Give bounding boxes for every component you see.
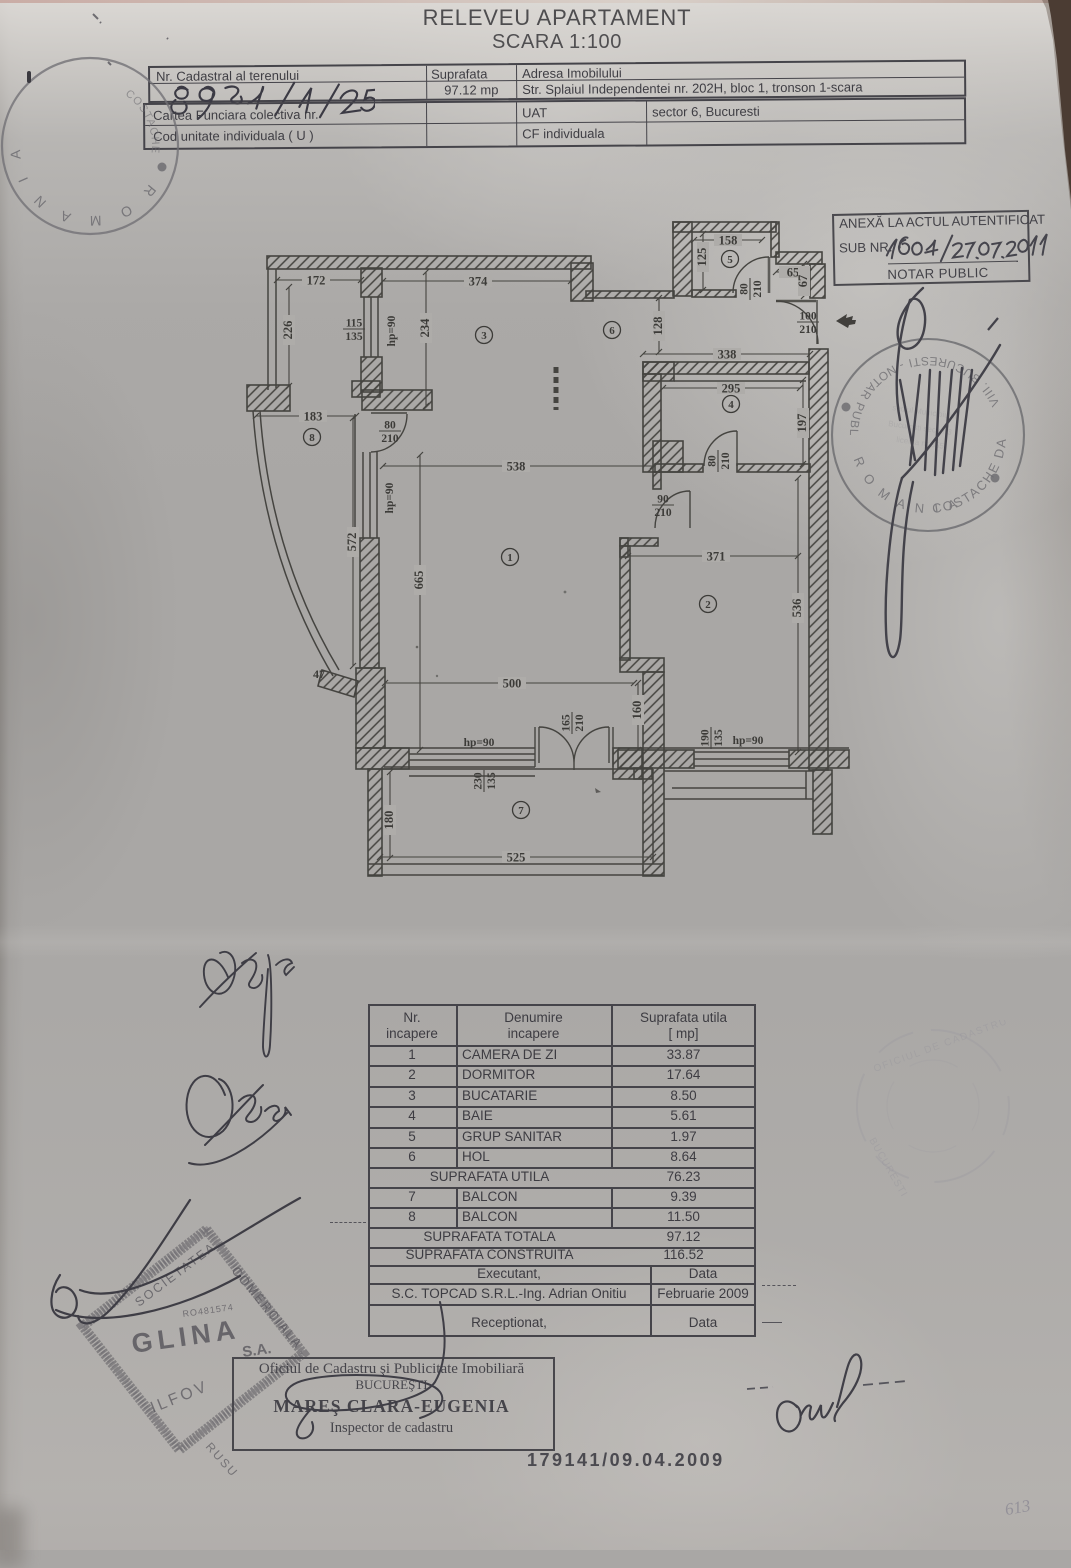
svg-text:160: 160 [630,701,644,720]
svg-text:183: 183 [304,410,323,424]
svg-text:135: 135 [486,772,498,790]
svg-text:165: 165 [561,714,573,732]
svg-text:47: 47 [313,667,325,681]
svg-text:230: 230 [473,772,485,790]
svg-text:90: 90 [657,494,669,506]
svg-text:hp=90: hp=90 [464,737,495,749]
svg-text:1: 1 [507,552,513,564]
svg-text:135: 135 [713,729,725,747]
svg-text:210: 210 [654,507,672,519]
svg-text:4: 4 [728,399,734,411]
svg-text:ILFOV: ILFOV [148,1378,211,1417]
svg-text:80: 80 [384,420,396,432]
svg-text:COSTACHE: COSTACHE [123,88,161,155]
svg-text:100: 100 [799,311,817,323]
svg-text:374: 374 [469,275,489,289]
svg-text:125: 125 [695,248,709,267]
svg-text:8: 8 [309,432,315,444]
svg-text:BUCURESTI: BUCURESTI [866,1136,909,1199]
svg-text:538: 538 [507,460,526,474]
svg-text:158: 158 [719,234,738,248]
svg-text:2: 2 [705,599,711,611]
svg-text:210: 210 [799,324,817,336]
svg-text:hp=90: hp=90 [386,315,398,346]
svg-text:525: 525 [507,851,526,865]
svg-text:hp=90: hp=90 [384,482,396,513]
svg-text:338: 338 [718,348,737,362]
svg-text:226: 226 [281,321,295,340]
svg-text:210: 210 [381,433,399,445]
svg-text:190: 190 [700,729,712,747]
svg-text:80: 80 [707,455,719,467]
svg-text:67: 67 [796,275,810,288]
svg-text:128: 128 [651,317,665,336]
svg-text:6: 6 [609,325,615,337]
svg-text:210: 210 [752,280,764,298]
svg-text:OFICIUL DE CADASTRU: OFICIUL DE CADASTRU [872,1020,1009,1075]
svg-text:172: 172 [307,274,326,288]
svg-text:371: 371 [707,550,726,564]
svg-text:180: 180 [382,811,396,830]
svg-text:572: 572 [345,533,359,552]
svg-text:197: 197 [795,414,809,433]
svg-text:135: 135 [345,331,363,343]
svg-text:295: 295 [722,382,741,396]
svg-text:hp=90: hp=90 [733,735,764,747]
svg-text:5: 5 [727,254,733,266]
svg-text:500: 500 [503,677,522,691]
svg-text:665: 665 [412,571,426,590]
svg-text:80: 80 [739,283,751,295]
svg-text:210: 210 [574,714,586,732]
svg-text:234: 234 [418,318,432,338]
svg-text:R O M A N I A: R O M A N I A [7,142,160,229]
svg-text:3: 3 [481,330,487,342]
svg-text:115: 115 [346,318,363,330]
svg-text:536: 536 [790,599,804,618]
svg-text:7: 7 [518,805,524,817]
svg-text:210: 210 [720,452,732,470]
